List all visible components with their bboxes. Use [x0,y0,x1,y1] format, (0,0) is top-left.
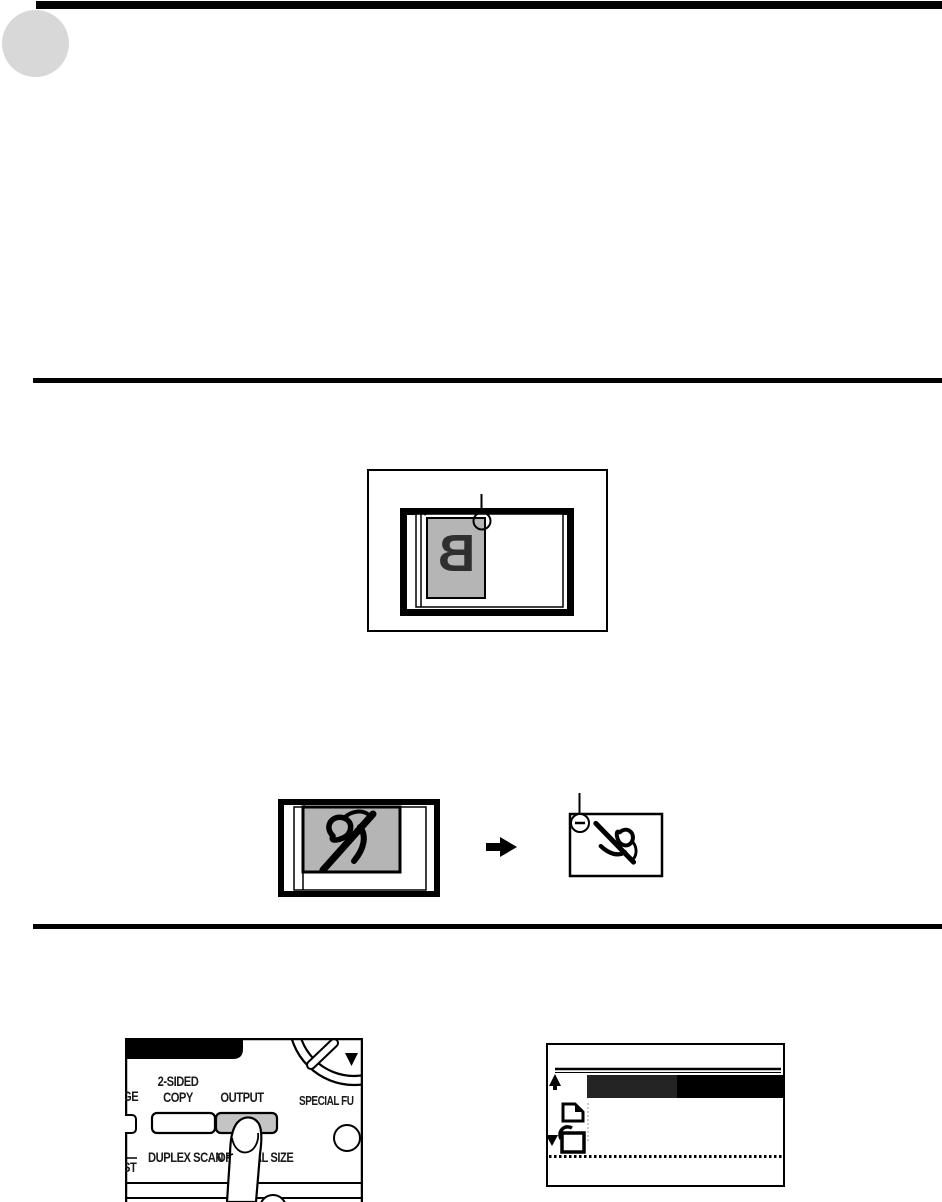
finger-press-icon [125,1038,363,1202]
corner-marker-circle-icon [474,513,491,530]
highlight-bar-right [677,1075,783,1098]
lcd-drawing [546,1043,785,1187]
section-divider [33,924,942,929]
section-divider [33,378,942,383]
document-glass-drawing [367,469,608,632]
right-arrow-icon [486,837,517,857]
mirrored-letter: B [428,529,485,579]
highlight-bar-left [587,1075,677,1098]
figure-rotation-copy [278,793,664,898]
figure-document-glass: B [367,469,608,632]
header-bar [36,1,942,9]
corner-step-dot [2,10,69,77]
manual-page: B [0,0,942,1202]
rotation-copy-drawing [278,793,664,898]
figure-control-panel: 2-SIDED COPY GE OUTPUT SPECIAL FU DUPLEX… [125,1038,363,1202]
figure-lcd-display [546,1043,785,1187]
